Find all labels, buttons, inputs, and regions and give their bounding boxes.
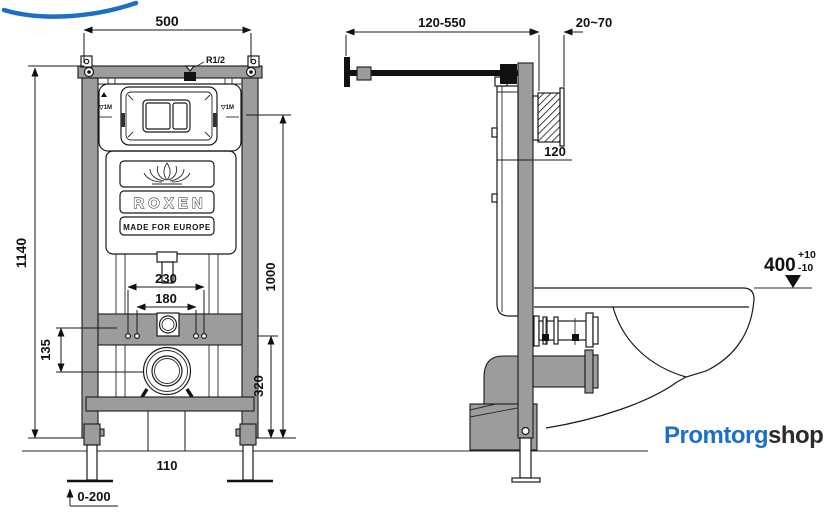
flush-bend-flange	[157, 252, 177, 262]
top-bar	[78, 66, 262, 78]
installation-diagram: R1/2 ▽1M ▽1M ROXEN MADE FOR EURO	[0, 0, 840, 525]
right-hanger-hole	[251, 59, 255, 63]
right-foot-tube	[243, 445, 253, 480]
plate-corner-mark	[205, 132, 210, 137]
flush-pipe-bell	[586, 313, 593, 347]
right-foot-screw	[236, 429, 240, 436]
dim-wall-range: 20~70	[576, 15, 613, 30]
lotus-panel	[120, 161, 214, 187]
left-rail	[82, 66, 98, 438]
dim-seat-height: 400	[764, 255, 796, 276]
plate-corner-mark	[205, 95, 210, 100]
drain-bracket-left	[142, 389, 147, 397]
flush-plate-inner	[126, 92, 212, 140]
dim-tol-plus: +10	[798, 249, 816, 261]
dim-tol-minus: -10	[798, 262, 813, 274]
dim-stud-height: 320	[251, 375, 266, 397]
drain-pipe-bell	[585, 350, 593, 393]
brand-text: ROXEN	[133, 195, 206, 212]
drain-bracket-right	[187, 389, 192, 397]
flush-plate-outer	[121, 87, 217, 145]
lotus-icon	[144, 163, 190, 184]
side-rail	[518, 63, 533, 438]
clamp-nut	[572, 334, 579, 341]
cistern-port-upper	[492, 128, 497, 137]
right-foot-collar	[240, 424, 256, 445]
drain-pipe-bell-ring	[593, 355, 598, 388]
logo-swoosh-icon	[0, 0, 140, 22]
lower-crossbar	[86, 397, 254, 411]
left-hanger-hole	[84, 59, 88, 63]
fixing-stud	[202, 334, 207, 339]
level-marker-triangle-icon	[785, 275, 801, 288]
drain-core	[155, 359, 180, 384]
drain-ring	[147, 351, 188, 392]
fixing-stud	[135, 334, 140, 339]
right-corner-bolt-dot	[249, 70, 253, 74]
left-foot-screw	[100, 429, 104, 436]
level-triangle-icon	[101, 92, 107, 97]
cistern-port-lower	[492, 194, 497, 202]
dim-height: 1140	[13, 238, 29, 269]
flush-button-large	[146, 103, 170, 129]
dim-bracket-range: 120-550	[418, 15, 466, 30]
tagline-text: MADE FOR EUROPE	[123, 223, 211, 232]
side-foot-plate	[512, 478, 540, 482]
plate-corner-mark	[128, 132, 133, 137]
left-foot-tube	[87, 445, 97, 480]
drain-pipe	[533, 356, 585, 387]
logo-text-primary: Promtorg	[664, 422, 768, 449]
housing-plate-rear	[533, 96, 538, 140]
bracket-clamp-left	[357, 67, 371, 80]
drain-inner	[152, 356, 182, 386]
water-inlet-port	[184, 72, 196, 81]
dim-leg-range: 0-200	[77, 489, 110, 504]
bracket-hook	[344, 57, 350, 87]
right-plate-clip	[213, 113, 217, 127]
logo-text-secondary: shop	[768, 422, 823, 449]
clamp-nut	[542, 334, 549, 341]
flush-pipe-flange	[554, 317, 558, 344]
level-mark-right: ▽1M	[220, 105, 234, 111]
side-cistern	[497, 86, 518, 316]
dim-depth: 120	[544, 144, 566, 159]
flush-pipe-bell-ring	[593, 317, 598, 344]
bracket-rod	[350, 70, 518, 76]
level-mark-left: ▽1M	[98, 105, 112, 111]
left-plate-clip	[121, 113, 125, 127]
wall-finish-hatch	[538, 93, 560, 142]
front-view: R1/2 ▽1M ▽1M ROXEN MADE FOR EURO	[67, 55, 273, 481]
fixing-stud	[126, 334, 131, 339]
dim-stud-outer: 230	[155, 271, 177, 286]
plate-corner-mark	[128, 95, 133, 100]
dim-drain-width: 110	[157, 458, 178, 473]
flush-button-small	[173, 103, 187, 129]
left-corner-bolt-dot	[87, 70, 91, 74]
housing-plate-front	[560, 88, 564, 146]
left-foot-collar	[84, 424, 100, 445]
drain-outer	[144, 348, 191, 395]
dim-width: 500	[155, 13, 179, 29]
dim-stud-inner: 180	[155, 291, 177, 306]
shop-logo: Promtorgshop	[664, 424, 823, 448]
side-view	[344, 57, 812, 482]
inlet-label: R1/2	[206, 55, 225, 65]
side-view-dimensions: 120-550 20~70 120 400 +10 -10	[346, 15, 816, 288]
rail-pivot-hole	[522, 428, 529, 435]
bracket-clamp-right	[500, 64, 517, 84]
button-bezel	[143, 100, 190, 132]
flush-pipe-base	[534, 316, 539, 346]
dim-drain-offset: 135	[38, 339, 53, 361]
side-foot-tube	[520, 438, 531, 478]
fixing-stud	[194, 334, 199, 339]
dim-plate-height: 1000	[263, 263, 278, 292]
